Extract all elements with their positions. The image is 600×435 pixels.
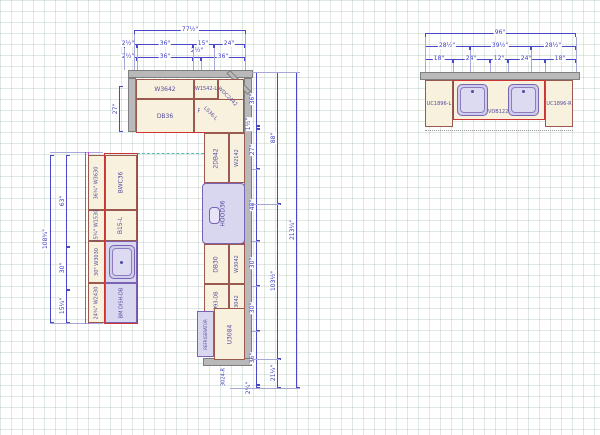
dim-label: 96" xyxy=(494,30,506,36)
counter-front-dotted-line xyxy=(425,130,573,131)
cabinet-label: UC1896-L xyxy=(427,101,451,107)
dim-label: 30" xyxy=(60,262,66,274)
wall-cabinet-strip-3[interactable]: 30" W3030 xyxy=(88,241,105,283)
dim-line xyxy=(256,169,260,241)
strip-dim: 24¾" xyxy=(94,306,100,320)
extension-line xyxy=(252,331,260,332)
clearance-dashed-line xyxy=(137,153,204,154)
extension-line xyxy=(508,63,509,72)
extension-line xyxy=(134,34,135,70)
strip-dim: 36¾" xyxy=(94,185,100,199)
cabinet-uc1896-l[interactable]: UC1896-L xyxy=(425,80,453,127)
dim-label: 39½" xyxy=(491,43,509,49)
dim-line xyxy=(256,331,260,385)
faucet-icon xyxy=(522,90,525,93)
floor-plan-canvas: 77½" 2½" 36" 15" 24" 2½" 36" 2½" 36" 27"… xyxy=(0,0,600,435)
counter-edge xyxy=(136,132,205,133)
wall-left-stub xyxy=(128,78,136,132)
strip-name: W3630 xyxy=(94,166,100,184)
extension-line xyxy=(453,63,454,72)
cabinet-tall-u3084[interactable]: U3084 xyxy=(214,308,245,360)
dim-line xyxy=(296,72,300,388)
handle-icon xyxy=(209,207,220,224)
extension-line xyxy=(50,152,103,153)
dim-line xyxy=(256,72,260,126)
strip-name: W3030 xyxy=(94,248,100,266)
cabinet-label: VDB122 xyxy=(488,109,508,115)
extension-line xyxy=(214,48,215,70)
strip-name: W1530 xyxy=(94,209,100,227)
dim-label: 24" xyxy=(223,41,235,47)
extension-line xyxy=(193,48,194,70)
dim-label: 36" xyxy=(250,93,256,105)
wall-vanity xyxy=(420,72,580,80)
extension-line xyxy=(531,50,532,72)
cabinet-label: W3042 xyxy=(234,255,240,273)
dim-label: 27" xyxy=(250,144,256,156)
strip-label: 36¾" W3630 xyxy=(94,166,100,199)
dim-label: 30" xyxy=(250,302,256,314)
extension-line xyxy=(490,63,491,72)
cabinet-w1542[interactable]: W1542-L xyxy=(194,79,218,99)
dim-label: 36" xyxy=(250,352,256,364)
extension-line xyxy=(137,48,138,70)
dim-label: 77½" xyxy=(181,27,199,33)
dim-label: 36" xyxy=(159,41,171,47)
dim-line xyxy=(256,286,260,331)
strip-label: 15¾" W1530 xyxy=(94,209,100,242)
range-hood[interactable]: HOOD36 xyxy=(202,183,245,244)
dim-label: 2½" xyxy=(190,48,204,54)
strip-dim: 15¾" xyxy=(94,228,100,242)
cabinet-w2142[interactable]: W2142 xyxy=(229,133,245,183)
extension-line xyxy=(201,61,202,70)
extension-line xyxy=(576,37,577,72)
dim-label: 28½" xyxy=(438,43,456,49)
cabinet-label: 2DB42 xyxy=(213,148,220,168)
dim-label: 1½" xyxy=(246,117,252,131)
dim-label: 30" xyxy=(250,257,256,269)
extension-line xyxy=(230,388,300,389)
counter-edge xyxy=(104,153,138,324)
extension-line xyxy=(245,34,246,70)
dim-line xyxy=(277,72,281,204)
extension-line xyxy=(545,63,546,72)
wall-cabinet-strip-2[interactable]: 15¾" W1530 xyxy=(88,210,105,241)
dim-label: 18" xyxy=(433,56,445,62)
extension-line xyxy=(470,50,471,72)
cabinet-label: UC1896-R xyxy=(546,101,571,107)
dim-label: 88" xyxy=(271,132,277,144)
dim-label: 18" xyxy=(554,56,566,62)
wall-cabinet-strip-4[interactable]: 24¾" W2430 xyxy=(88,283,105,323)
dim-line xyxy=(66,290,70,323)
extension-line xyxy=(252,359,280,360)
cabinet-w3642[interactable]: W3642 xyxy=(136,79,194,99)
cabinet-label: W3642 xyxy=(154,86,175,93)
cabinet-w3042-upper[interactable]: W3042 xyxy=(229,244,245,284)
dim-label: 108¾" xyxy=(43,228,49,250)
cabinet-2db42[interactable]: 2DB42 xyxy=(204,133,229,183)
strip-label: 30" W3030 xyxy=(94,248,100,276)
dim-line xyxy=(119,86,123,132)
dim-line xyxy=(277,204,281,359)
dim-line xyxy=(256,129,260,169)
filler-label: F xyxy=(197,110,202,115)
dim-line xyxy=(66,247,70,290)
dim-label: 103½" xyxy=(271,270,277,292)
cabinet-label: DB36 xyxy=(157,113,173,120)
appliance-label: HOOD36 xyxy=(220,200,227,226)
dim-line xyxy=(193,57,201,61)
dim-line xyxy=(66,155,70,247)
strip-name: W2430 xyxy=(94,287,100,305)
wall-cabinet-strip-1[interactable]: 36¾" W3630 xyxy=(88,155,105,210)
dim-line xyxy=(277,359,281,388)
faucet-icon xyxy=(471,90,474,93)
extension-line xyxy=(252,169,260,170)
dim-label: 21¼" xyxy=(271,364,277,382)
cabinet-label: U3084 xyxy=(226,324,233,344)
cabinet-note: 3024-R xyxy=(222,367,227,387)
cabinet-db36[interactable]: DB36 xyxy=(136,99,194,133)
strip-label: 24¾" W2430 xyxy=(94,287,100,320)
dim-label: 36" xyxy=(217,54,229,60)
extension-line xyxy=(124,48,125,70)
dim-label: 24" xyxy=(465,56,477,62)
cabinet-uc1896-r[interactable]: UC1896-R xyxy=(545,80,573,127)
cabinet-label: W1542-L xyxy=(195,86,217,92)
cabinet-db30[interactable]: DB30 xyxy=(204,244,229,284)
strip-dim: 30" xyxy=(94,267,100,276)
cabinet-label: DB30 xyxy=(213,256,220,272)
extension-line xyxy=(252,286,260,287)
cabinet-label: W2142 xyxy=(234,149,240,167)
dim-label: 213¼" xyxy=(290,219,296,241)
appliance-label: REFRIGERATOR xyxy=(203,319,208,350)
extension-line xyxy=(425,37,426,72)
extension-line xyxy=(252,72,300,73)
dim-label: 36" xyxy=(159,54,171,60)
dim-label: 12" xyxy=(493,56,505,62)
dim-label: 27" xyxy=(113,103,119,115)
dim-line xyxy=(50,155,54,323)
dim-label: 48" xyxy=(250,199,256,211)
extension-line xyxy=(252,241,260,242)
extension-line xyxy=(252,204,280,205)
extension-line xyxy=(50,323,103,324)
dim-label: 63" xyxy=(60,195,66,207)
dim-label: 15¼" xyxy=(60,297,66,315)
dim-line xyxy=(256,241,260,286)
refrigerator[interactable]: REFRIGERATOR xyxy=(197,311,214,357)
dim-label: 28½" xyxy=(544,43,562,49)
